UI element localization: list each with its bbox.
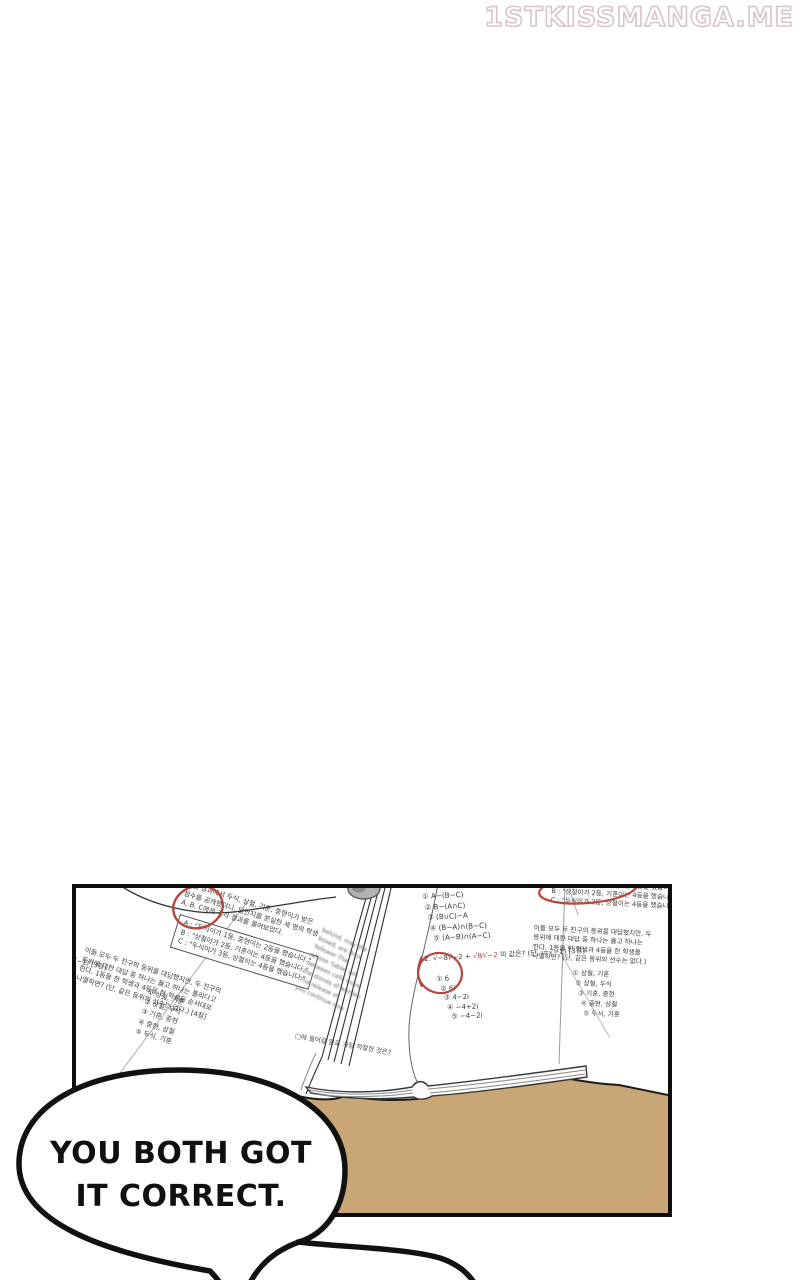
speech-bubble-text: YOU BOTH GOT IT CORRECT. bbox=[36, 1132, 326, 1218]
red-circle-left-paper bbox=[168, 888, 227, 934]
site-watermark: 1STKISSMANGA.ME bbox=[484, 2, 794, 33]
manga-page: { "watermark": "1STKISSMANGA.ME", "speec… bbox=[0, 0, 800, 1280]
red-circle-book-problem bbox=[415, 950, 464, 996]
red-circle-right-paper bbox=[538, 888, 638, 907]
speech-bubble-tail bbox=[298, 1242, 473, 1280]
